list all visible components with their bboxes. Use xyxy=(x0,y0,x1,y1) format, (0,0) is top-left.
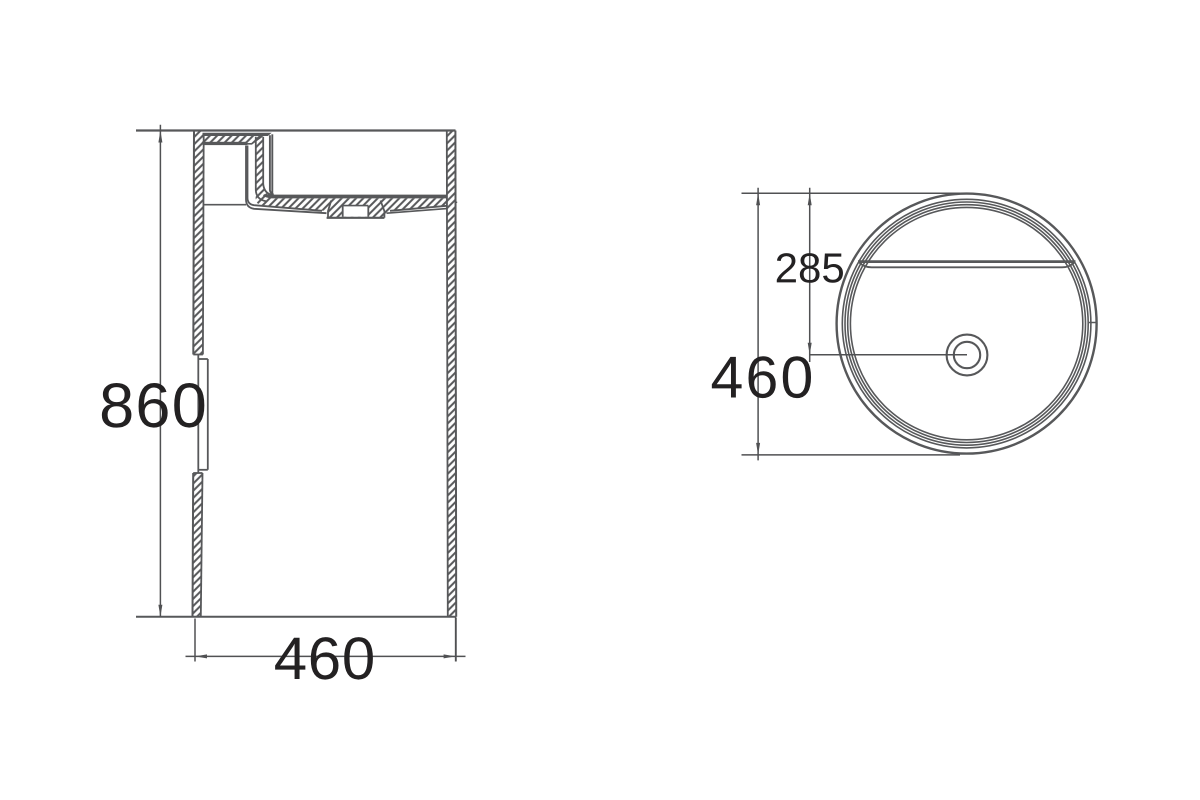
svg-text:460: 460 xyxy=(710,345,815,411)
svg-text:460: 460 xyxy=(274,625,376,692)
svg-text:860: 860 xyxy=(99,371,208,441)
